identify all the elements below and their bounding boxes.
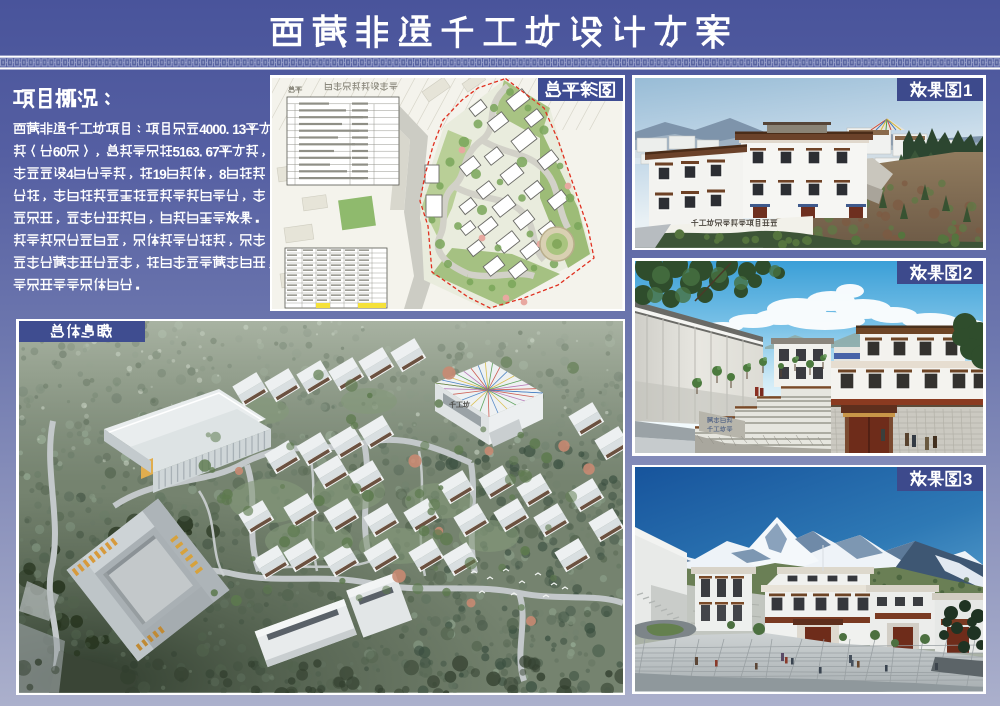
svg-text:8: 8 [219,167,227,182]
svg-text:.: . [199,145,203,160]
svg-text:0: 0 [60,145,68,160]
svg-text:1: 1 [963,81,972,100]
svg-text:.: . [226,122,230,137]
svg-text:7: 7 [212,145,220,160]
svg-text:9: 9 [159,167,167,182]
svg-text:4: 4 [66,167,74,182]
svg-text:2: 2 [963,264,972,283]
svg-text:3: 3 [239,122,247,137]
svg-text:3: 3 [963,470,972,489]
